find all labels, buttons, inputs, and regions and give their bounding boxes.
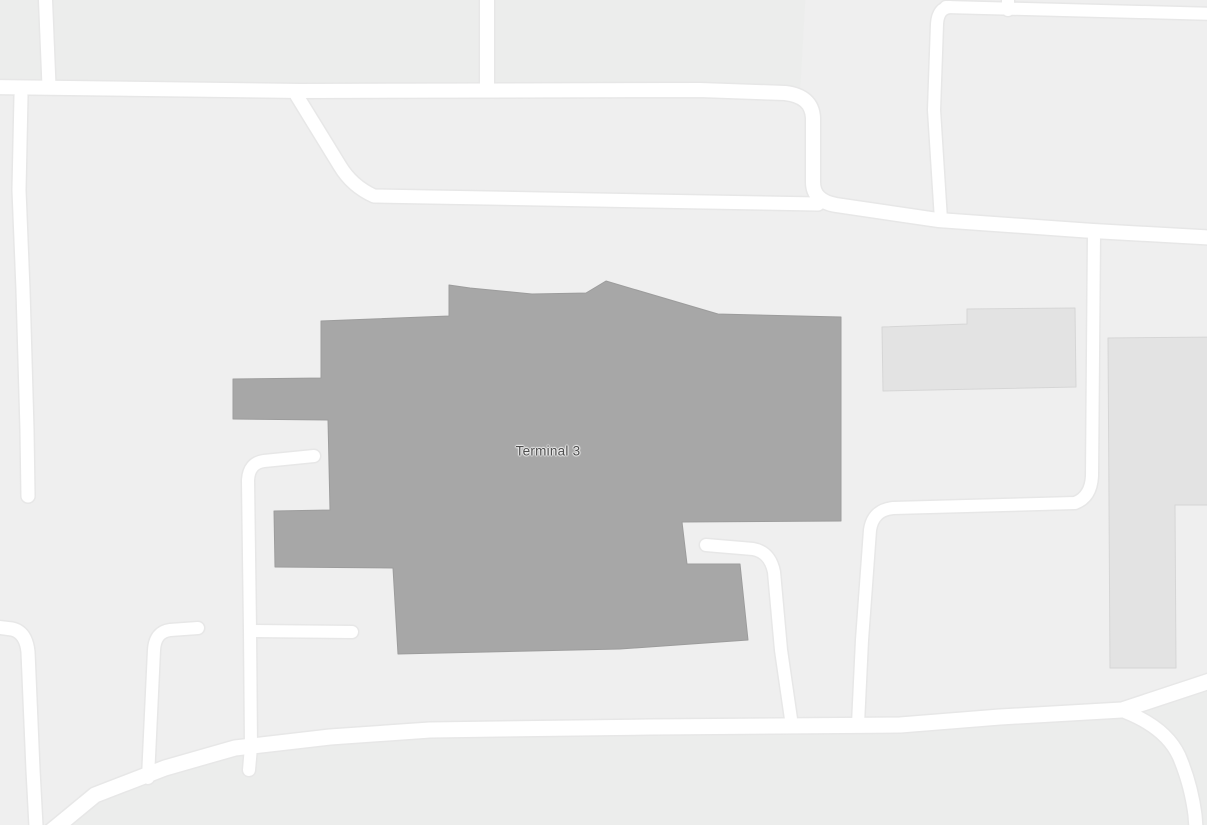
map-canvas[interactable]: Terminal 3 <box>0 0 1207 825</box>
road-center-stub <box>253 631 352 632</box>
parcel-north <box>0 0 806 94</box>
terminal-3-label[interactable]: Terminal 3 <box>516 444 581 459</box>
road-top-left-stub <box>45 0 49 86</box>
map-svg <box>0 0 1207 825</box>
road-top-right <box>946 7 1207 14</box>
